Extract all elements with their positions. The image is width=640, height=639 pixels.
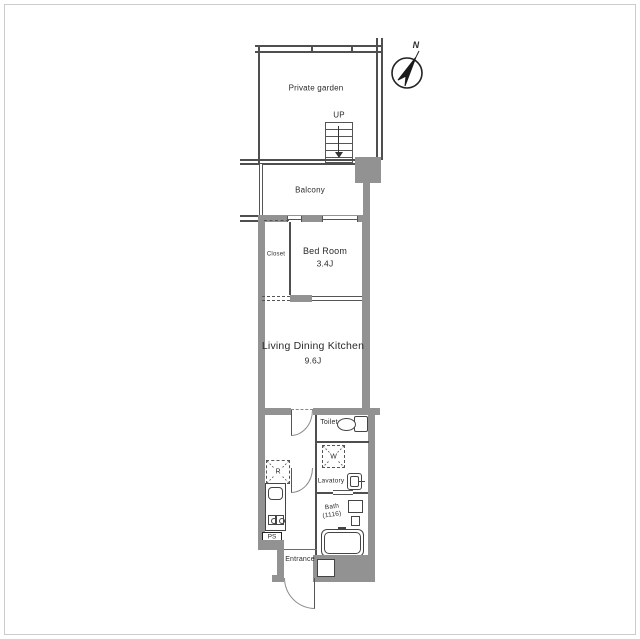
kitchen-sink	[268, 487, 283, 500]
neighbor-stub-outer	[240, 215, 258, 217]
bath-shower-control	[351, 516, 360, 526]
refrigerator-letter: R	[274, 469, 281, 476]
washer-letter: W	[329, 453, 338, 460]
kitchen-counter	[265, 483, 286, 531]
fence-post	[351, 45, 353, 53]
wall-right-upper	[362, 215, 370, 415]
garden-fence-top-outer	[255, 45, 381, 47]
garden-fence-right-inner	[381, 38, 383, 160]
toilet-label: Toilet	[320, 419, 338, 427]
wall-jog-left	[258, 540, 284, 550]
bedroom-label: Bed Room	[303, 247, 347, 257]
stove-burner-left	[268, 515, 276, 525]
bath-top-wall-left	[315, 492, 335, 494]
bath-counter	[348, 500, 363, 513]
stove-burner-right	[276, 515, 284, 525]
toilet-bottom-wall	[315, 441, 369, 443]
image-frame	[4, 4, 636, 635]
compass-icon	[388, 50, 428, 96]
bath-left-wall	[315, 495, 317, 560]
bath-door	[333, 490, 353, 495]
fence-post	[311, 45, 313, 53]
bedroom-sliding-door	[312, 296, 362, 301]
bathtub	[321, 529, 364, 557]
lavatory-left-wall	[315, 443, 317, 495]
bathtub-faucet	[338, 527, 346, 529]
stairs-arrow-shaft	[338, 126, 339, 152]
entrance-step-line	[284, 549, 317, 550]
closet-door-bottom-dash2	[262, 300, 290, 301]
toilet-tank	[354, 416, 368, 432]
toilet-left-wall	[315, 415, 317, 443]
garden-fence-top-inner	[255, 51, 381, 53]
lavatory-label: Lavatory	[318, 477, 345, 484]
shoe-cabinet	[317, 559, 335, 577]
wall-block-top-right	[355, 157, 381, 183]
bedroom-window-large	[322, 216, 358, 222]
wall-ldk-bottom-left	[258, 408, 291, 415]
garden-fence-right-outer	[376, 38, 378, 160]
ldk-label: Living Dining Kitchen	[262, 341, 364, 353]
balcony-label: Balcony	[295, 187, 325, 196]
compass-north-label: N	[413, 41, 420, 51]
balcony-left-wall	[259, 164, 263, 216]
wall-left	[258, 215, 265, 542]
bath-top-wall-right	[351, 492, 368, 494]
closet-door-bottom-dash1	[262, 296, 290, 297]
bedroom-size: 3.4J	[317, 259, 334, 268]
refrigerator-space: R	[266, 460, 290, 484]
stairs-up-label: UP	[333, 112, 345, 121]
entrance-label: Entrance	[285, 556, 315, 564]
closet-divider-wall	[289, 222, 291, 295]
balcony-right-wall	[363, 183, 370, 216]
bedroom-window-small	[287, 216, 302, 222]
wall-ldk-bottom-right	[313, 408, 380, 415]
lavatory-tap	[359, 481, 365, 482]
closet-door-top-dashes	[264, 220, 289, 221]
toilet-bowl	[337, 418, 356, 431]
wall-bottom-left-stub	[272, 575, 284, 582]
closet-label: Closet	[267, 252, 285, 259]
stairs-arrow-head	[335, 152, 343, 158]
balcony-top-line-inner	[240, 163, 355, 165]
garden-fence-left	[258, 46, 260, 164]
balcony-top-line-outer	[240, 159, 355, 161]
wall-bedroom-bottom	[290, 295, 312, 302]
garden-label: Private garden	[289, 85, 344, 94]
washer-space: W	[322, 445, 345, 468]
ldk-size: 9.6J	[305, 356, 322, 365]
neighbor-stub-inner	[240, 220, 258, 222]
floor-plan: Private garden UP N Balcony Closet Bed R…	[0, 0, 640, 639]
